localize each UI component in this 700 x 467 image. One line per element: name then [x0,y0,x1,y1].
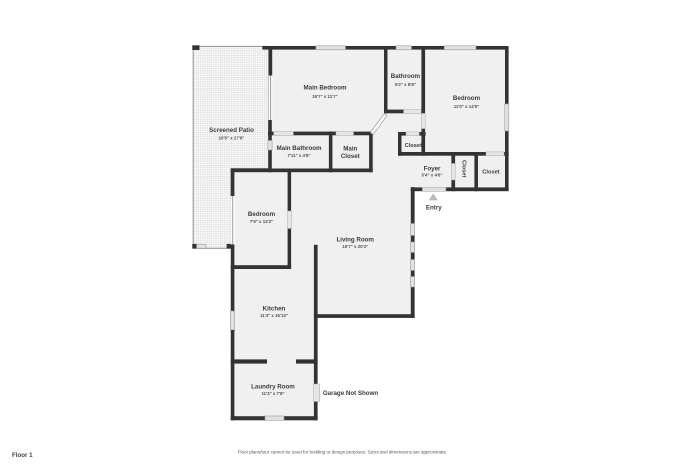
svg-text:5'2" x 8'8": 5'2" x 8'8" [395,82,416,87]
svg-text:11'0" x 14'5": 11'0" x 14'5" [454,104,480,109]
svg-text:Screened Patio: Screened Patio [209,127,254,134]
svg-text:Laundry Room: Laundry Room [251,384,295,391]
svg-text:Floor plans/tour cannot be use: Floor plans/tour cannot be used for buil… [238,450,448,455]
svg-text:11'3" x 7'8": 11'3" x 7'8" [261,391,284,396]
svg-text:7'9" x 13'2": 7'9" x 13'2" [250,219,273,224]
svg-text:Foyer: Foyer [424,165,441,172]
svg-text:10'5" x 27'6": 10'5" x 27'6" [219,136,245,141]
svg-text:Closet: Closet [461,160,467,177]
svg-text:Main Bathroom: Main Bathroom [276,145,322,152]
svg-text:7'11" x 4'8": 7'11" x 4'8" [287,153,310,158]
svg-text:Closet: Closet [482,170,499,176]
svg-text:16'7" x 20'3": 16'7" x 20'3" [342,244,368,249]
svg-text:Floor 1: Floor 1 [12,452,33,459]
svg-text:Living Room: Living Room [336,237,374,244]
svg-text:15'7" x 11'7": 15'7" x 11'7" [312,94,338,99]
svg-text:5'4" x 4'6": 5'4" x 4'6" [422,172,443,177]
svg-text:Kitchen: Kitchen [263,306,286,313]
svg-text:Closet: Closet [405,143,422,149]
svg-text:Main Bedroom: Main Bedroom [304,85,347,92]
svg-text:Garage Not Shown: Garage Not Shown [323,390,379,397]
svg-text:Main: Main [343,145,357,152]
svg-text:Entry: Entry [426,204,442,211]
svg-text:Bedroom: Bedroom [453,95,481,102]
svg-text:11'3" x 15'10": 11'3" x 15'10" [260,313,288,318]
svg-text:Closet: Closet [341,153,360,160]
svg-text:Bathroom: Bathroom [391,73,421,80]
svg-text:Bedroom: Bedroom [248,211,276,218]
